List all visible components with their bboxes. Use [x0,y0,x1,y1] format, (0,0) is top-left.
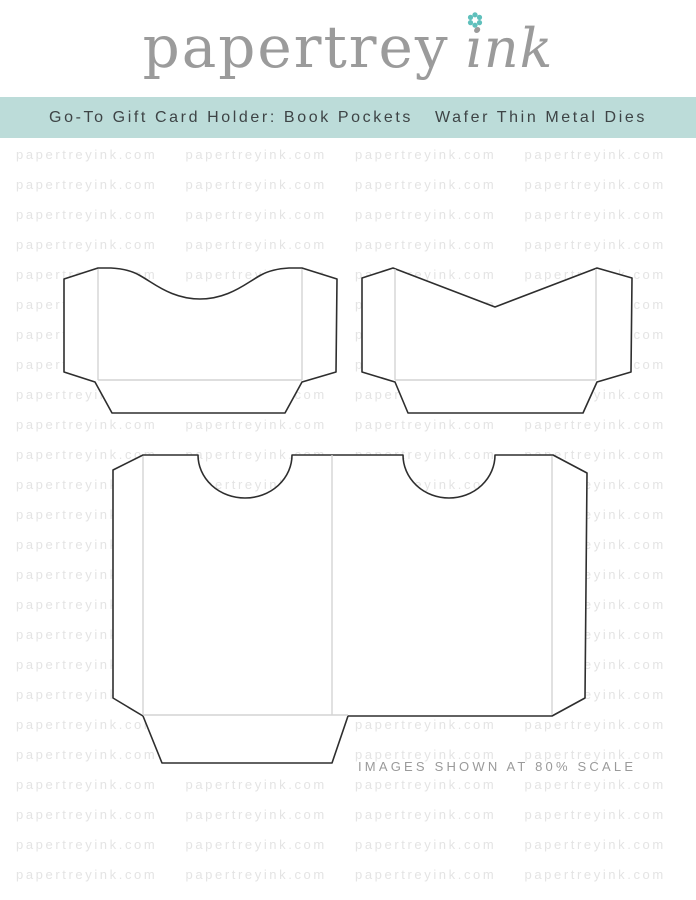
scale-note: IMAGES SHOWN AT 80% SCALE [358,759,636,774]
die-pocket-v-outline [362,268,632,413]
product-title-left: Go-To Gift Card Holder: Book Pockets [49,109,413,126]
logo-papertrey-text: papertrey [143,18,450,76]
brand-logo: papertrey ink [0,0,696,97]
product-image-page: papertrey ink Go-To Gift Card Holder: Bo… [0,0,696,900]
product-title: Go-To Gift Card Holder: Book PocketsWafe… [49,109,647,127]
die-card-holder-outline [113,455,587,763]
product-title-banner: Go-To Gift Card Holder: Book PocketsWafe… [0,97,696,138]
flower-icon [467,12,483,28]
die-pocket-curved-outline [64,268,337,413]
logo-ink-wrap: ink [466,22,554,76]
product-title-right: Wafer Thin Metal Dies [435,109,647,126]
